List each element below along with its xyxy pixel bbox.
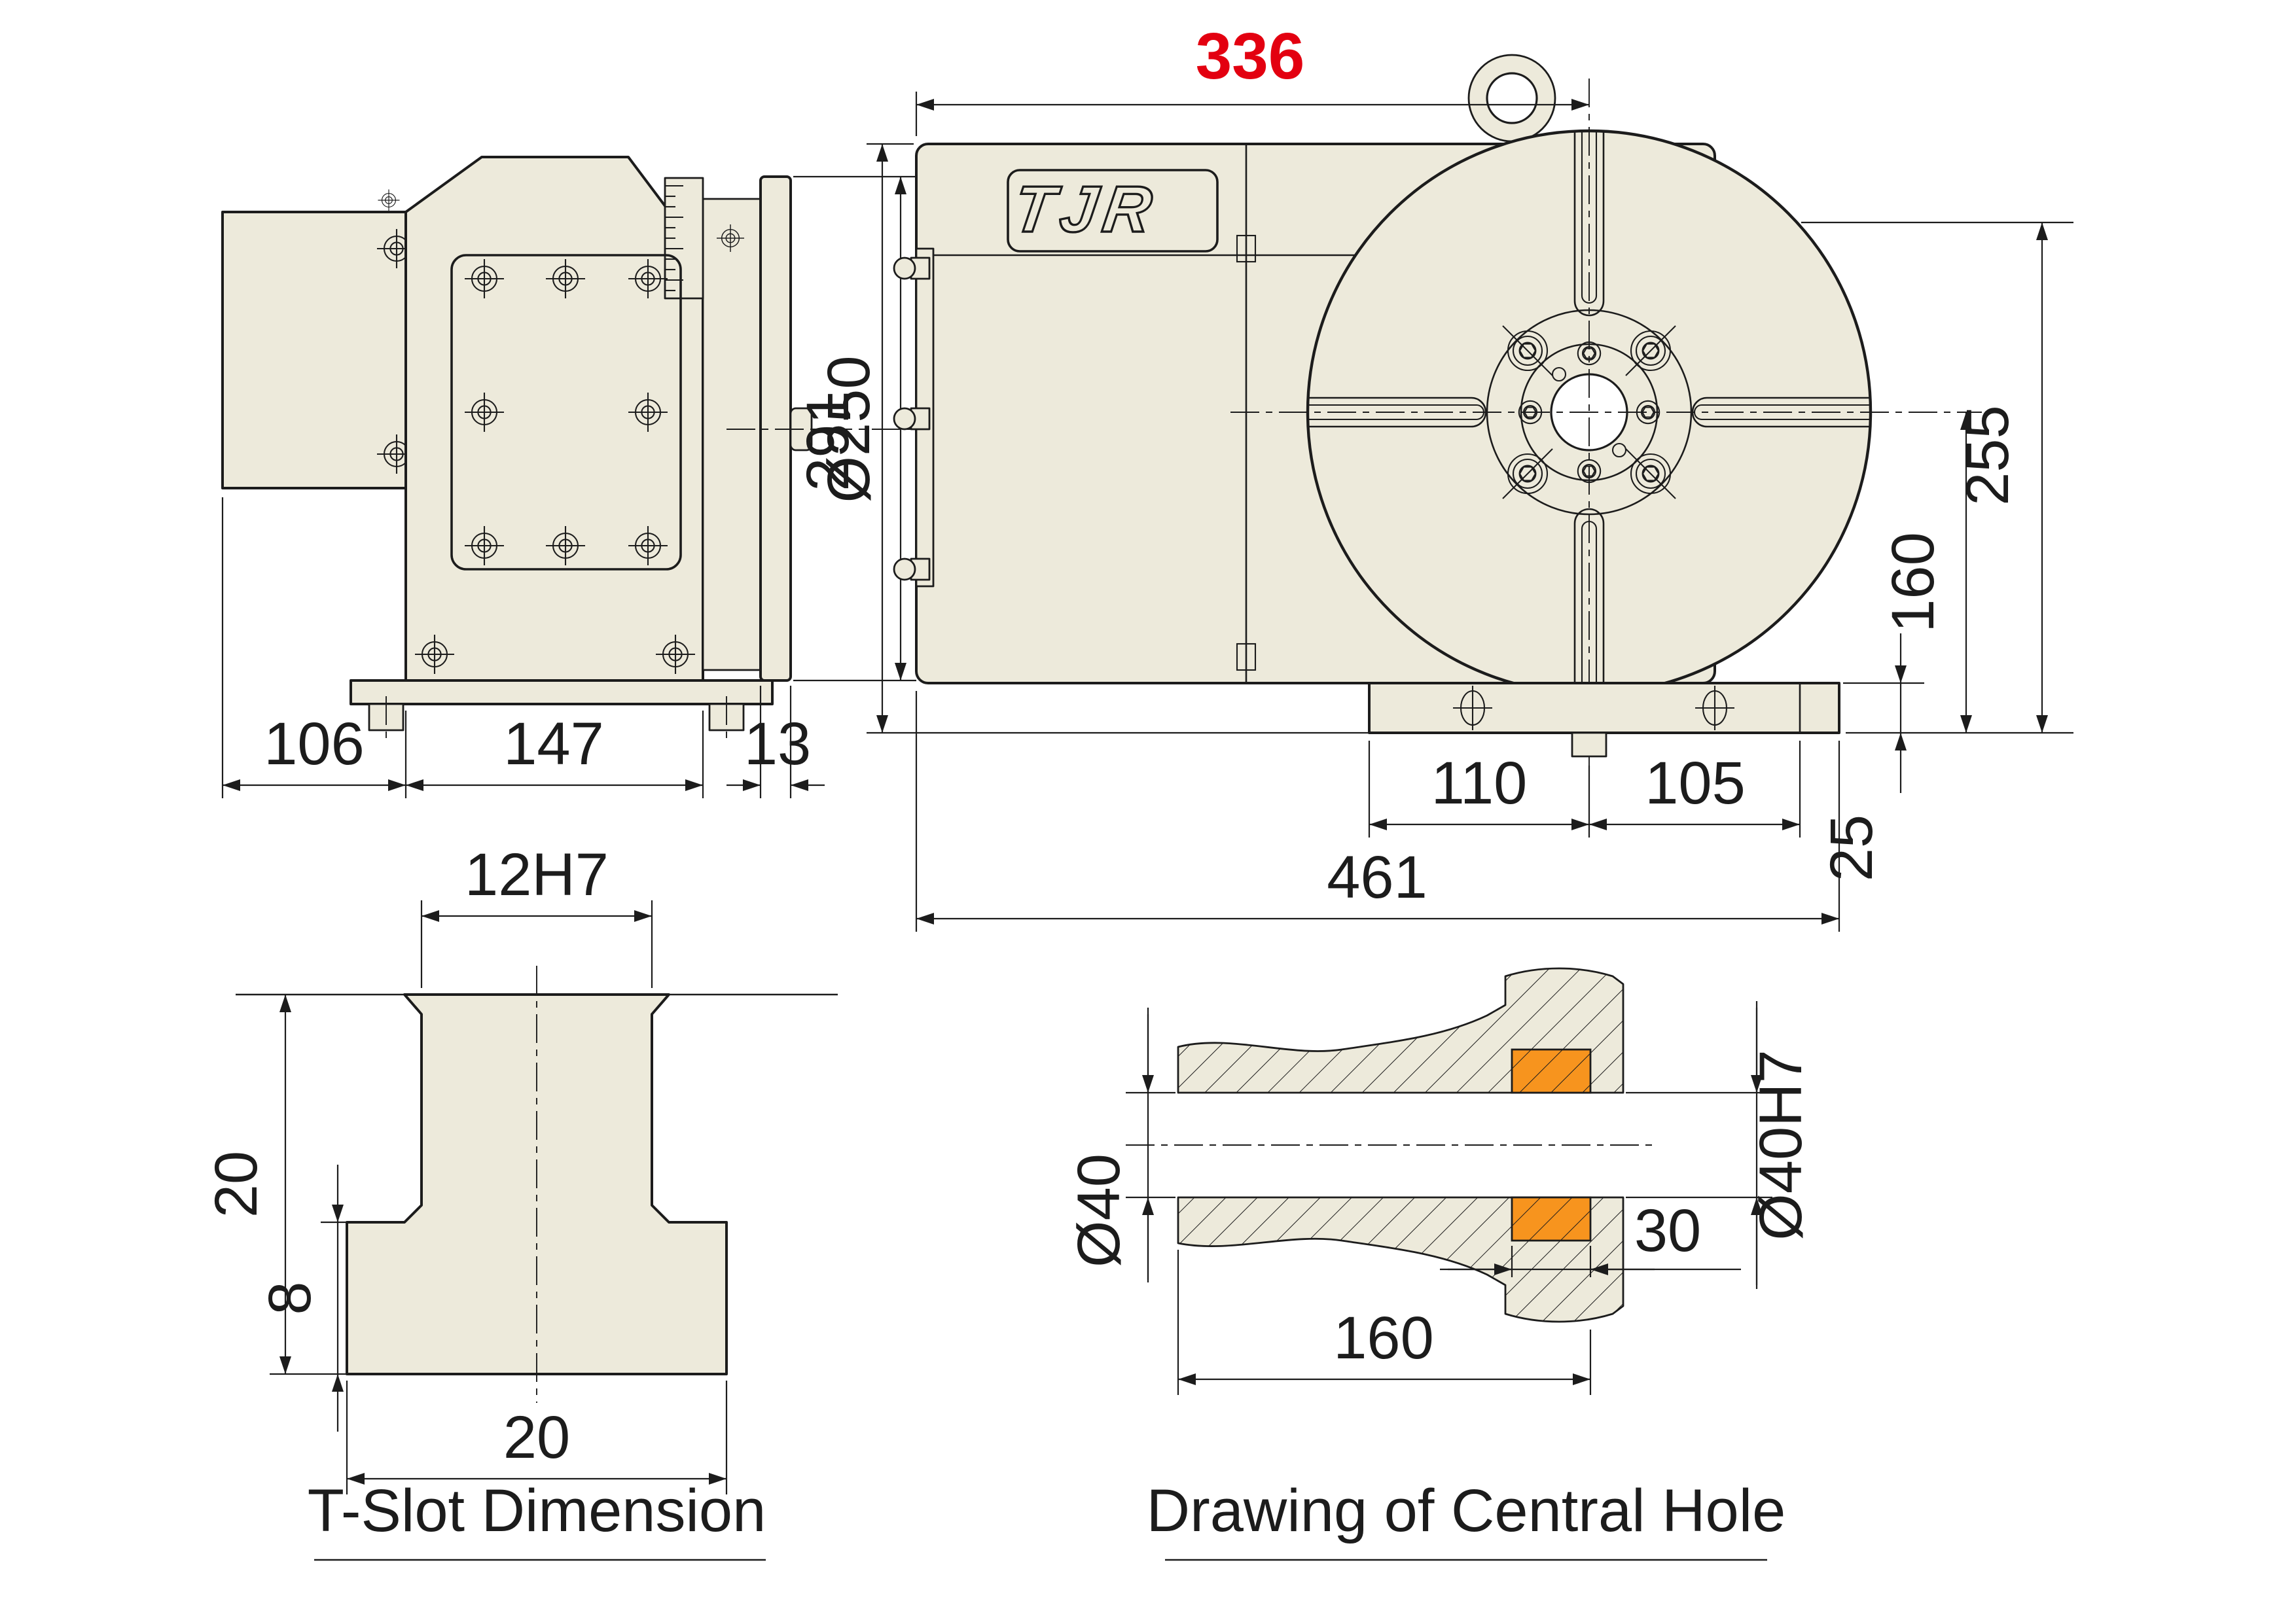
spindle-hub bbox=[703, 199, 761, 670]
dim-label-slot-width: 12H7 bbox=[465, 841, 609, 908]
dim-label-overall-width: 461 bbox=[1327, 844, 1427, 911]
lifting-eye bbox=[1469, 55, 1555, 141]
dim-label-motor-width: 106 bbox=[264, 711, 365, 777]
vernier-scale bbox=[665, 178, 703, 298]
dim-label-precision-bore: Ø40H7 bbox=[1748, 1050, 1814, 1241]
motor-housing bbox=[223, 190, 416, 489]
dim-label-base-height: 25 bbox=[1818, 815, 1885, 881]
dim-label-upper-height: 255 bbox=[1954, 405, 2021, 506]
faceplate-edge bbox=[761, 177, 791, 680]
dim-label-base-width: 20 bbox=[503, 1404, 570, 1471]
dim-total-depth: 20 bbox=[203, 995, 347, 1374]
locating-key bbox=[1572, 733, 1606, 756]
central-hole-title: Drawing of Central Hole bbox=[1147, 1477, 1786, 1544]
dim-label-base-depth: 8 bbox=[257, 1281, 323, 1315]
dim-label-center-from-left: 336 bbox=[1196, 20, 1305, 93]
dim-label-precision-length: 30 bbox=[1634, 1197, 1701, 1264]
dim-label-plate-thickness: 13 bbox=[744, 711, 811, 777]
lower-section bbox=[1178, 1197, 1623, 1322]
upper-section bbox=[1178, 968, 1623, 1093]
dim-base-depth: 8 bbox=[257, 1165, 347, 1432]
technical-drawing-rotary-table: Ø250 106 147 13 bbox=[0, 0, 2296, 1624]
dim-label-bore-diameter: Ø40 bbox=[1066, 1154, 1132, 1267]
dim-bore-diameter: Ø40 bbox=[1066, 1008, 1175, 1282]
dim-label-slot-right: 105 bbox=[1645, 750, 1746, 817]
base-plate bbox=[1369, 683, 1839, 756]
screw-icon bbox=[378, 190, 400, 211]
front-view: TJR bbox=[795, 20, 2073, 932]
brand-logo: TJR bbox=[1009, 173, 1163, 245]
central-hole-detail: Ø40 160 30 Ø40H7 Drawing of Central Hole bbox=[1066, 968, 1814, 1560]
dim-label-body-height: 291 bbox=[795, 391, 861, 491]
dim-label-center-height: 160 bbox=[1880, 532, 1946, 633]
tslot-title: T-Slot Dimension bbox=[308, 1477, 766, 1544]
tslot-detail: 12H7 20 8 20 T-Slot Dimension bbox=[203, 841, 838, 1560]
dim-label-body-width: 147 bbox=[503, 711, 604, 777]
dim-label-total-depth: 20 bbox=[203, 1151, 270, 1218]
dim-label-slot-left: 110 bbox=[1431, 750, 1528, 817]
dim-label-bore-length: 160 bbox=[1333, 1305, 1434, 1371]
